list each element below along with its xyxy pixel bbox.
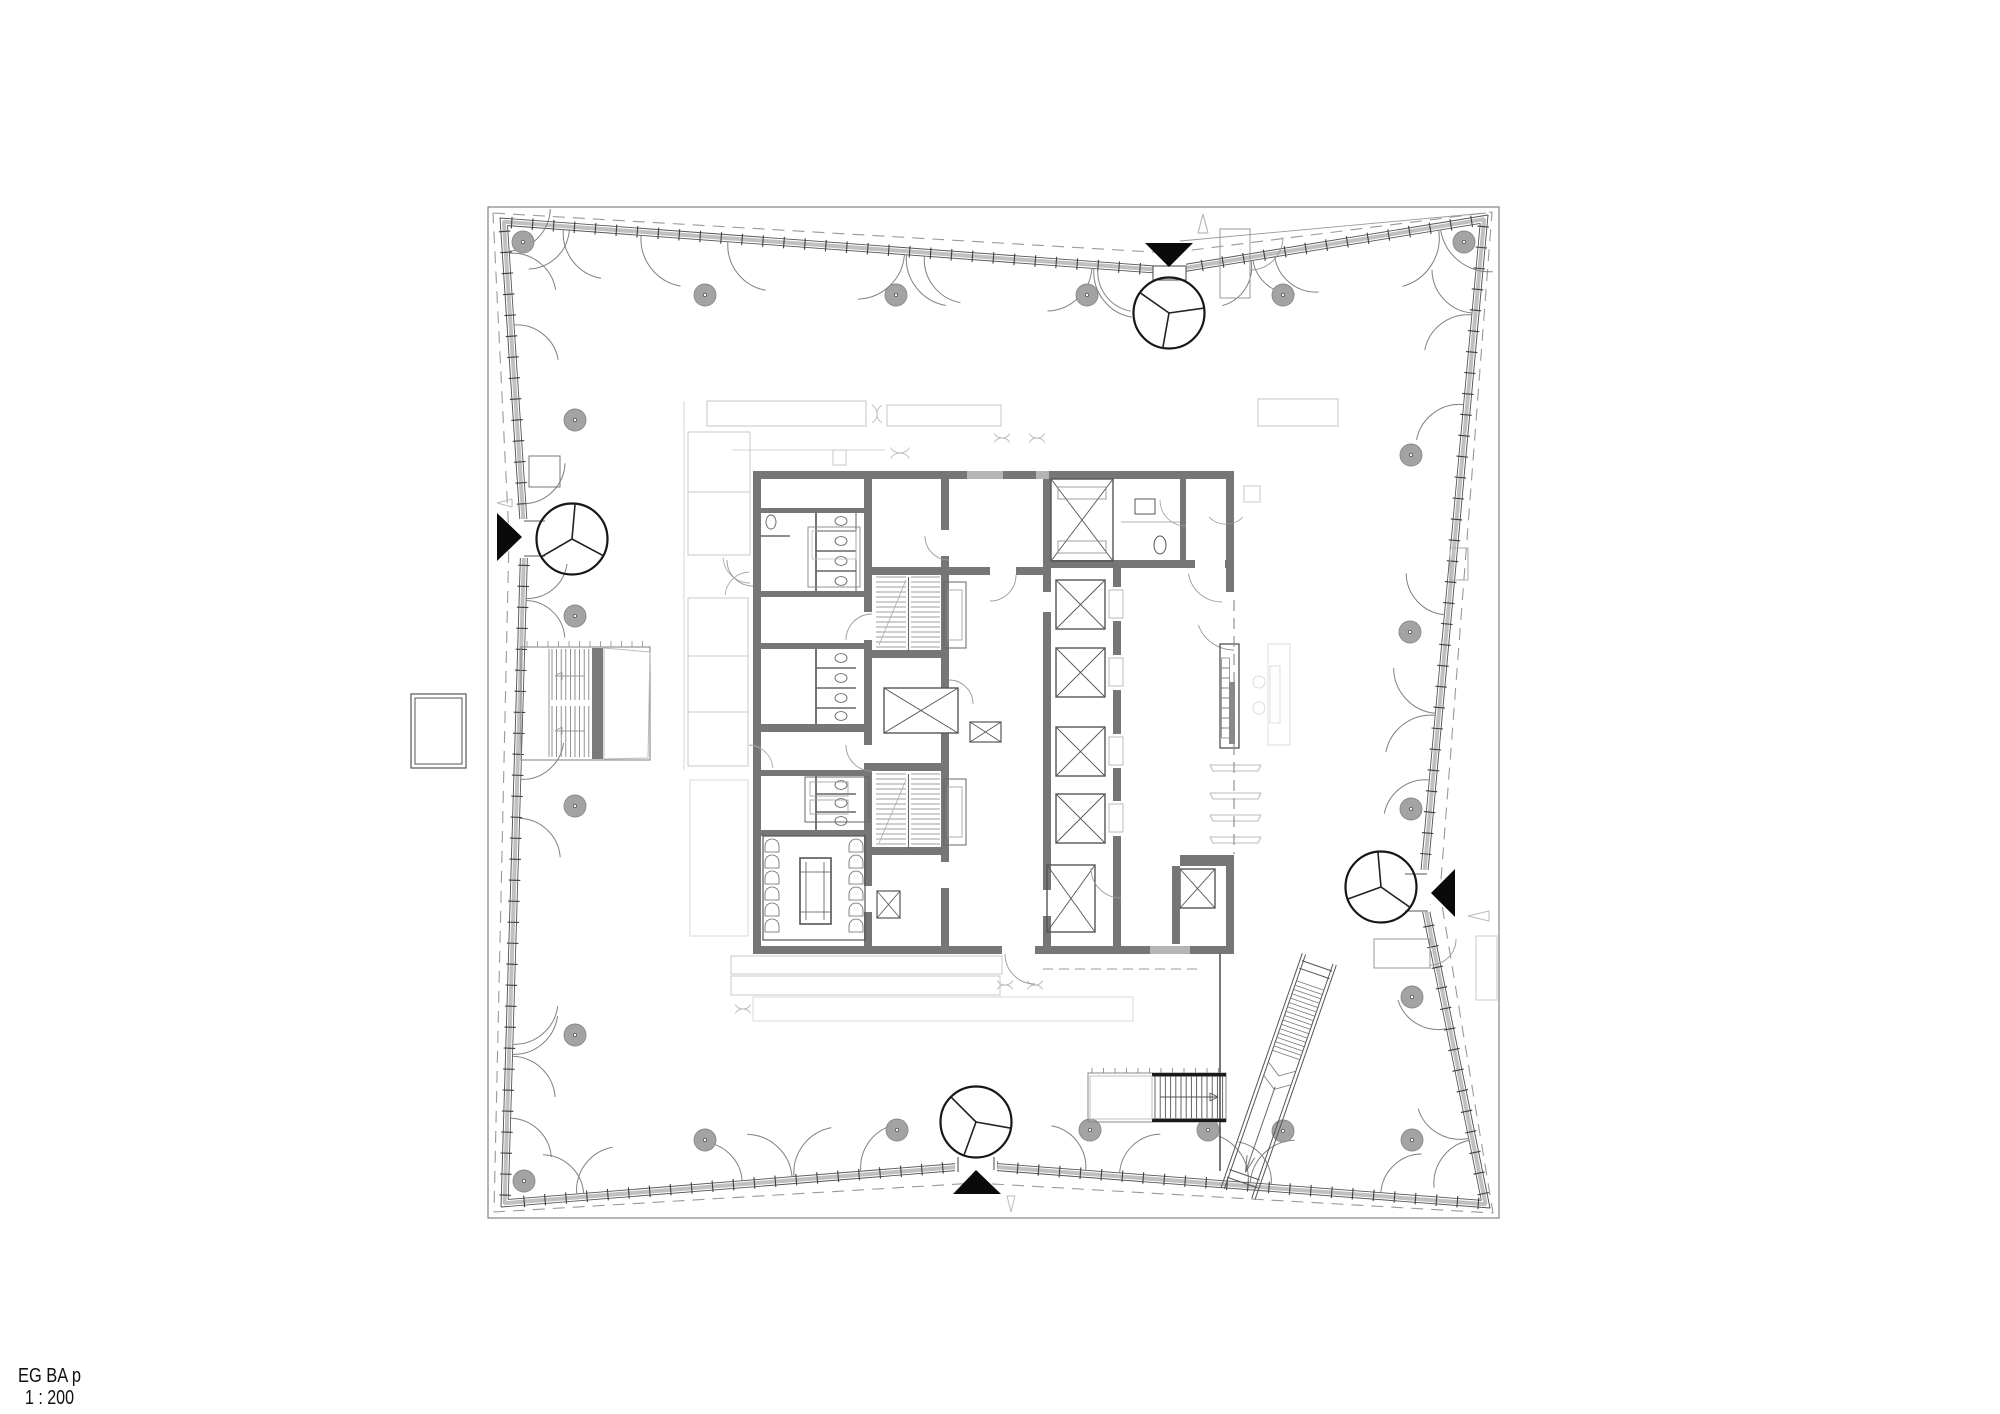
svg-text:EG BA p: EG BA p (18, 1365, 81, 1387)
svg-text:1 : 200: 1 : 200 (25, 1387, 74, 1409)
